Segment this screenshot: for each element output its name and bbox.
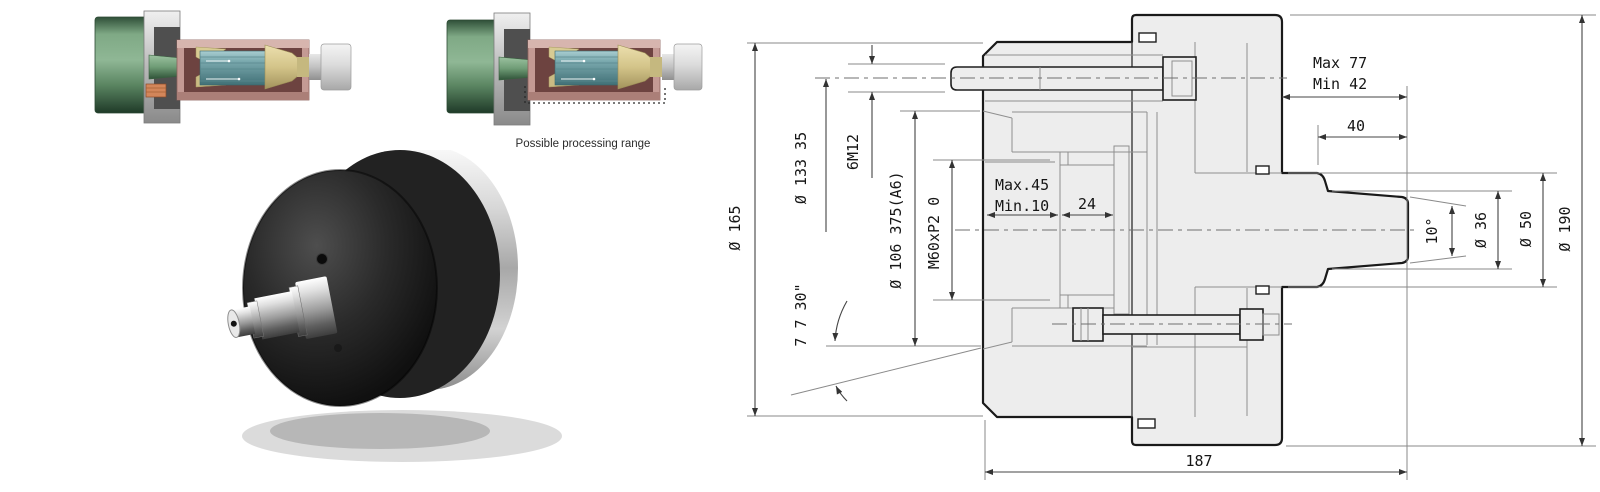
dim-stroke-range: Max 77 Min 42	[1282, 54, 1407, 97]
dim-187: 187	[985, 452, 1407, 472]
dim-40-label: 40	[1347, 117, 1365, 135]
dim-dia106-label: Ø 106 375(A6)	[887, 171, 905, 288]
chuck-front-face	[243, 170, 437, 406]
cutaway-render-2	[447, 13, 702, 125]
dim-dia133: Ø 133 35	[792, 79, 826, 232]
face-screw-hole	[317, 254, 328, 265]
dim-nose-angle: 10°	[1423, 206, 1452, 256]
sleeve-top-wall	[177, 40, 309, 48]
collet-teal-cylinder	[555, 51, 623, 85]
spindle-green-cylinder	[447, 20, 500, 113]
technical-drawing: Ø 165 Ø 133 35 6M12 Ø 106 375(A6) M60xP2…	[720, 0, 1600, 492]
photo-shadow-core	[270, 413, 490, 449]
dim-thread: M60xP2 0	[925, 160, 952, 300]
spindle-green-cylinder	[95, 17, 149, 113]
cutaway-render-1	[95, 11, 351, 123]
dim-stroke-min-label: Min 42	[1313, 75, 1367, 93]
dim-dia133-label: Ø 133 35	[792, 132, 810, 204]
dim-dia36-label: Ø 36	[1472, 212, 1490, 248]
dim-stroke-max-label: Max 77	[1313, 54, 1367, 72]
figure-canvas: Possible processing range	[0, 0, 1600, 492]
workpiece-cylinder	[321, 44, 351, 90]
sleeve-top-wall	[528, 40, 660, 48]
dim-dia165-label: Ø 165	[726, 205, 744, 250]
dim-6m12: 6M12	[844, 45, 872, 178]
dim-thread-label: M60xP2 0	[925, 197, 943, 269]
dim-clamp-min-label: Min.10	[995, 197, 1049, 215]
chuck-body	[243, 150, 518, 406]
collet-teal-cylinder	[200, 51, 270, 85]
sleeve-bottom-wall	[177, 92, 309, 100]
dim-40: 40	[1318, 117, 1407, 137]
orange-insert	[146, 84, 166, 97]
dim-nose-angle-label: 10°	[1423, 217, 1441, 244]
dim-clamp-max-label: Max.45	[995, 176, 1049, 194]
dim-dia190: Ø 190	[1556, 15, 1582, 446]
processing-range-caption: Possible processing range	[516, 138, 651, 150]
face-screw-hole-2	[334, 344, 342, 352]
product-photo	[180, 150, 580, 492]
dim-24-label: 24	[1078, 195, 1096, 213]
dim-dia190-label: Ø 190	[1556, 206, 1574, 251]
dim-dia50-label: Ø 50	[1517, 211, 1535, 247]
sleeve-bottom-wall	[528, 92, 660, 100]
dim-dia106: Ø 106 375(A6)	[887, 111, 915, 346]
cutaway-renders: Possible processing range	[80, 0, 705, 160]
dim-dia50: Ø 50	[1517, 173, 1543, 287]
tan-nub	[650, 57, 664, 77]
dim-187-label: 187	[1185, 452, 1212, 470]
dim-6m12-label: 6M12	[844, 134, 862, 170]
workpiece-neck	[662, 54, 675, 80]
tan-nub	[297, 57, 311, 77]
workpiece-cylinder	[674, 44, 702, 90]
dim-dia36: Ø 36	[1472, 191, 1498, 269]
dim-dia165: Ø 165	[726, 43, 755, 416]
dim-taper-angle-label: 7 7 30"	[792, 283, 810, 346]
